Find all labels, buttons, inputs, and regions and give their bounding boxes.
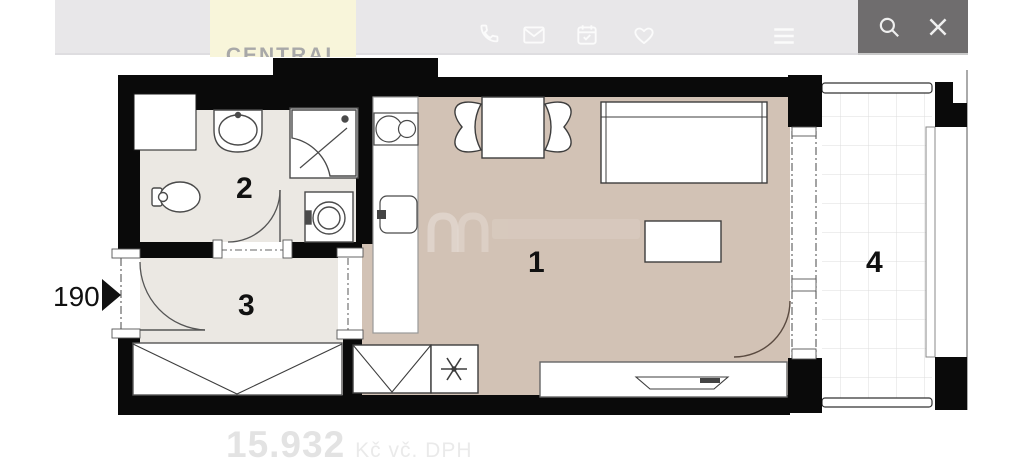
sink <box>214 110 262 152</box>
search-icon[interactable] <box>876 14 902 40</box>
close-icon[interactable] <box>925 14 951 40</box>
balcony-railing-bottom <box>822 398 932 407</box>
tv-sideboard <box>540 362 787 397</box>
price-suffix: Kč vč. DPH <box>355 439 472 463</box>
price-amount: 15.932 <box>226 424 345 466</box>
room-label-bathroom: 2 <box>236 172 253 205</box>
room-label-hall: 3 <box>238 289 255 322</box>
installation-shaft <box>134 94 196 150</box>
heart-icon[interactable] <box>631 22 657 48</box>
price: 15.932 Kč vč. DPH <box>226 424 473 466</box>
balcony-railing-right <box>926 127 935 357</box>
balcony-railing-top <box>822 83 932 93</box>
calendar-icon[interactable] <box>574 22 600 48</box>
floorplan-image: 190 1 2 3 4 <box>0 0 1024 473</box>
dimension-190: 190 <box>53 279 121 312</box>
corner-shower <box>290 108 358 178</box>
mail-icon[interactable] <box>521 22 547 48</box>
kitchen <box>373 97 418 333</box>
menu-icon[interactable] <box>771 23 797 49</box>
room-label-balcony: 4 <box>866 246 883 279</box>
lightbox-viewer: 190 1 2 3 4 <box>0 0 1024 473</box>
dining-table <box>482 97 544 158</box>
dimension-label: 190 <box>53 281 100 312</box>
wardrobe-hall <box>133 343 342 395</box>
coffee-table <box>645 221 721 262</box>
brand-text: CENTRAL <box>226 44 340 57</box>
wardrobe-living <box>353 345 431 393</box>
phone-icon[interactable] <box>476 21 502 47</box>
hall-passage <box>337 248 363 339</box>
brand-box: CENTRAL <box>210 0 356 57</box>
room-label-living: 1 <box>528 246 545 279</box>
boiler <box>431 345 478 393</box>
washing-machine <box>305 192 353 242</box>
viewer-controls <box>858 0 968 55</box>
bed <box>601 102 767 183</box>
toolbar <box>55 0 858 55</box>
